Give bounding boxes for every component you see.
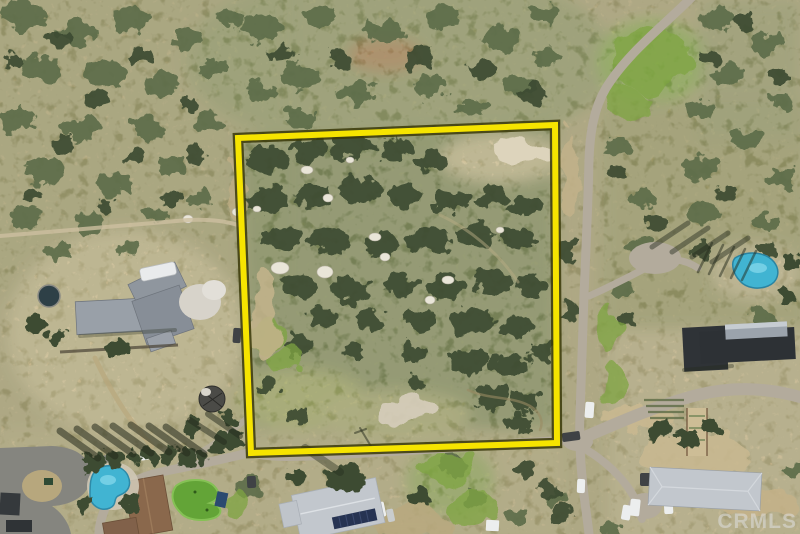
listing-photo: CRMLS [0, 0, 800, 534]
outbuilding-roof [0, 492, 21, 515]
stock-tank-pool [38, 285, 60, 307]
crmls-watermark: CRMLS [717, 510, 797, 533]
water-tank [199, 386, 225, 412]
outbuilding-roof-2 [6, 520, 32, 532]
house-bottom-right [648, 467, 762, 511]
aerial-photograph: CRMLS [0, 0, 800, 534]
driveway-island [22, 470, 62, 502]
